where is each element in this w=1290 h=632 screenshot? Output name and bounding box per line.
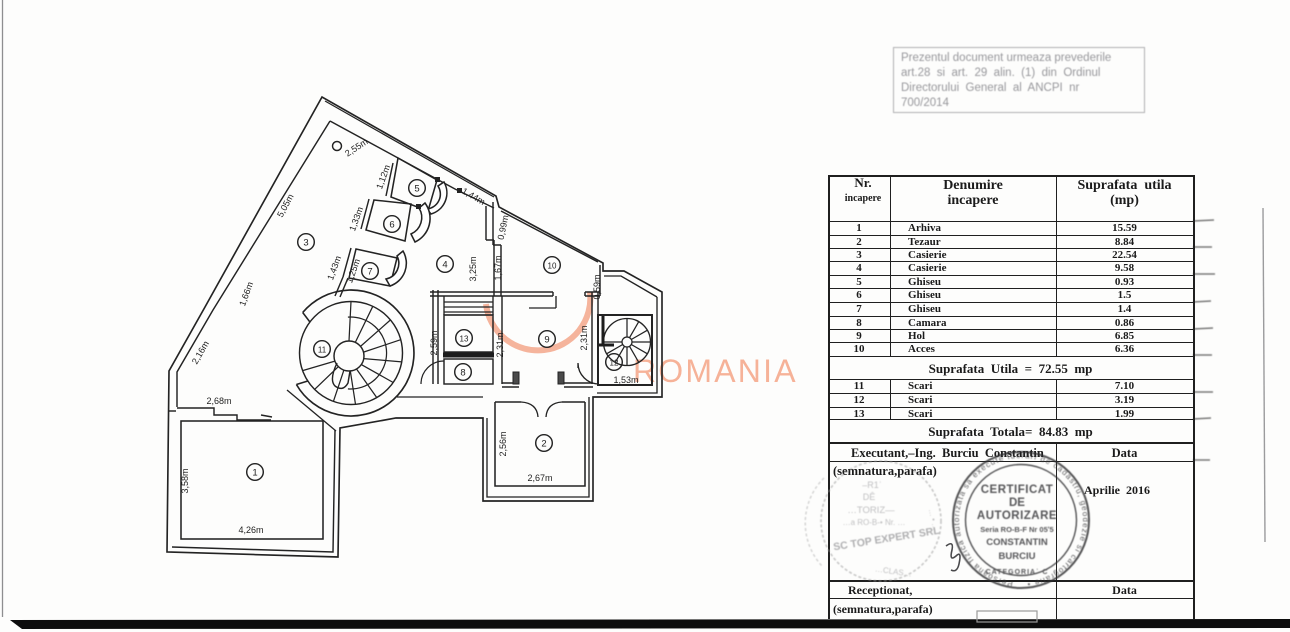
svg-text:CONSTANTIN: CONSTANTIN (986, 537, 1048, 548)
svg-text:DE: DE (1009, 497, 1025, 509)
svg-text:…a RO-B-• Nr. …: …a RO-B-• Nr. … (843, 518, 906, 527)
svg-text:Seria RO-B-F Nr 05ʹ5: Seria RO-B-F Nr 05ʹ5 (980, 525, 1053, 534)
svg-text:BURCIU: BURCIU (999, 551, 1036, 562)
svg-text:DÊ: DÊ (863, 492, 876, 502)
svg-text:AUTORIZARE: AUTORIZARE (977, 510, 1057, 522)
svg-text:SC TOP EXPERT SRL: SC TOP EXPERT SRL (832, 525, 941, 554)
svg-text:–R1ʾ: –R1ʾ (862, 480, 882, 490)
svg-text:…TORIZ—: …TORIZ— (847, 505, 895, 516)
svg-text:…CLAS…: …CLAS… (874, 564, 912, 578)
svg-text:CATEGORIAʾ C: CATEGORIAʾ C (986, 568, 1049, 576)
svg-text:Persoana fizica autorizata sa: Persoana fizica autorizata sa execute lu… (0, 0, 1090, 589)
svg-text:CERTIFICAT: CERTIFICAT (981, 484, 1054, 496)
